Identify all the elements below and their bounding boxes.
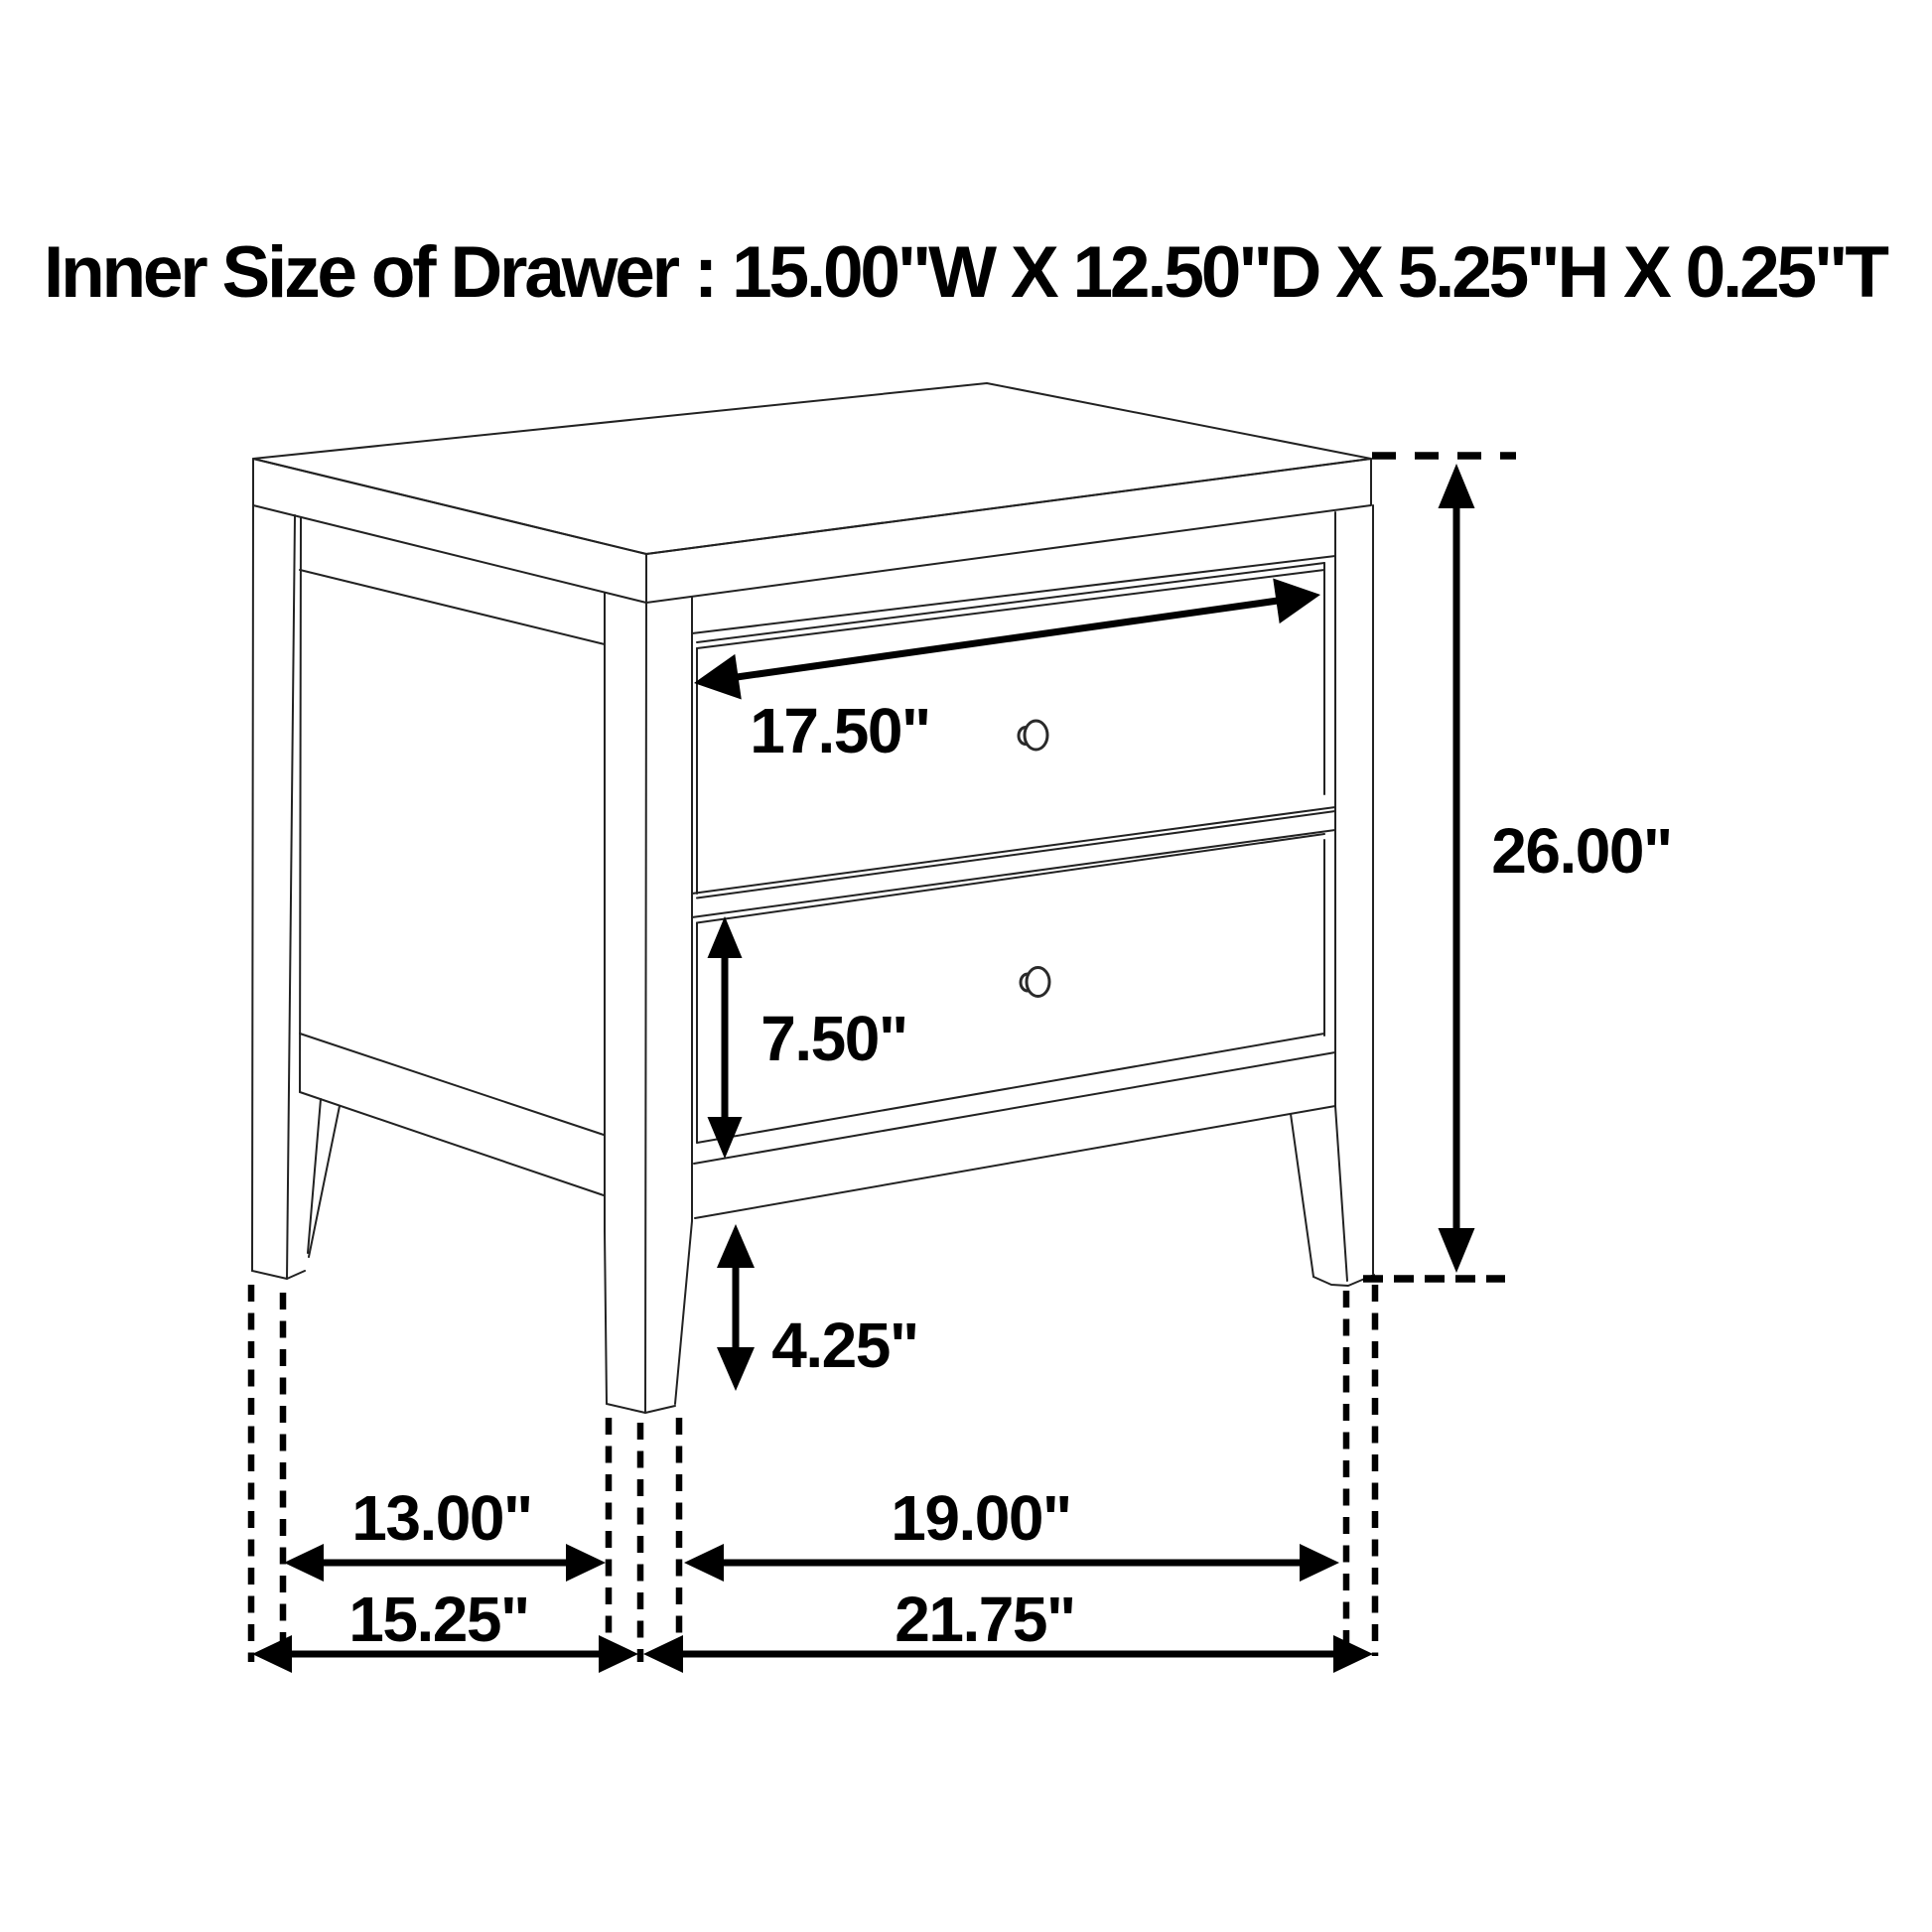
svg-text:4.25": 4.25" xyxy=(771,1310,917,1381)
svg-text:15.25": 15.25" xyxy=(348,1584,529,1655)
svg-text:13.00": 13.00" xyxy=(351,1482,532,1554)
svg-text:26.00": 26.00" xyxy=(1491,815,1672,887)
svg-text:7.50": 7.50" xyxy=(760,1003,906,1074)
svg-text:17.50": 17.50" xyxy=(750,695,930,766)
svg-text:21.75": 21.75" xyxy=(895,1584,1075,1655)
svg-text:19.00": 19.00" xyxy=(891,1482,1071,1554)
